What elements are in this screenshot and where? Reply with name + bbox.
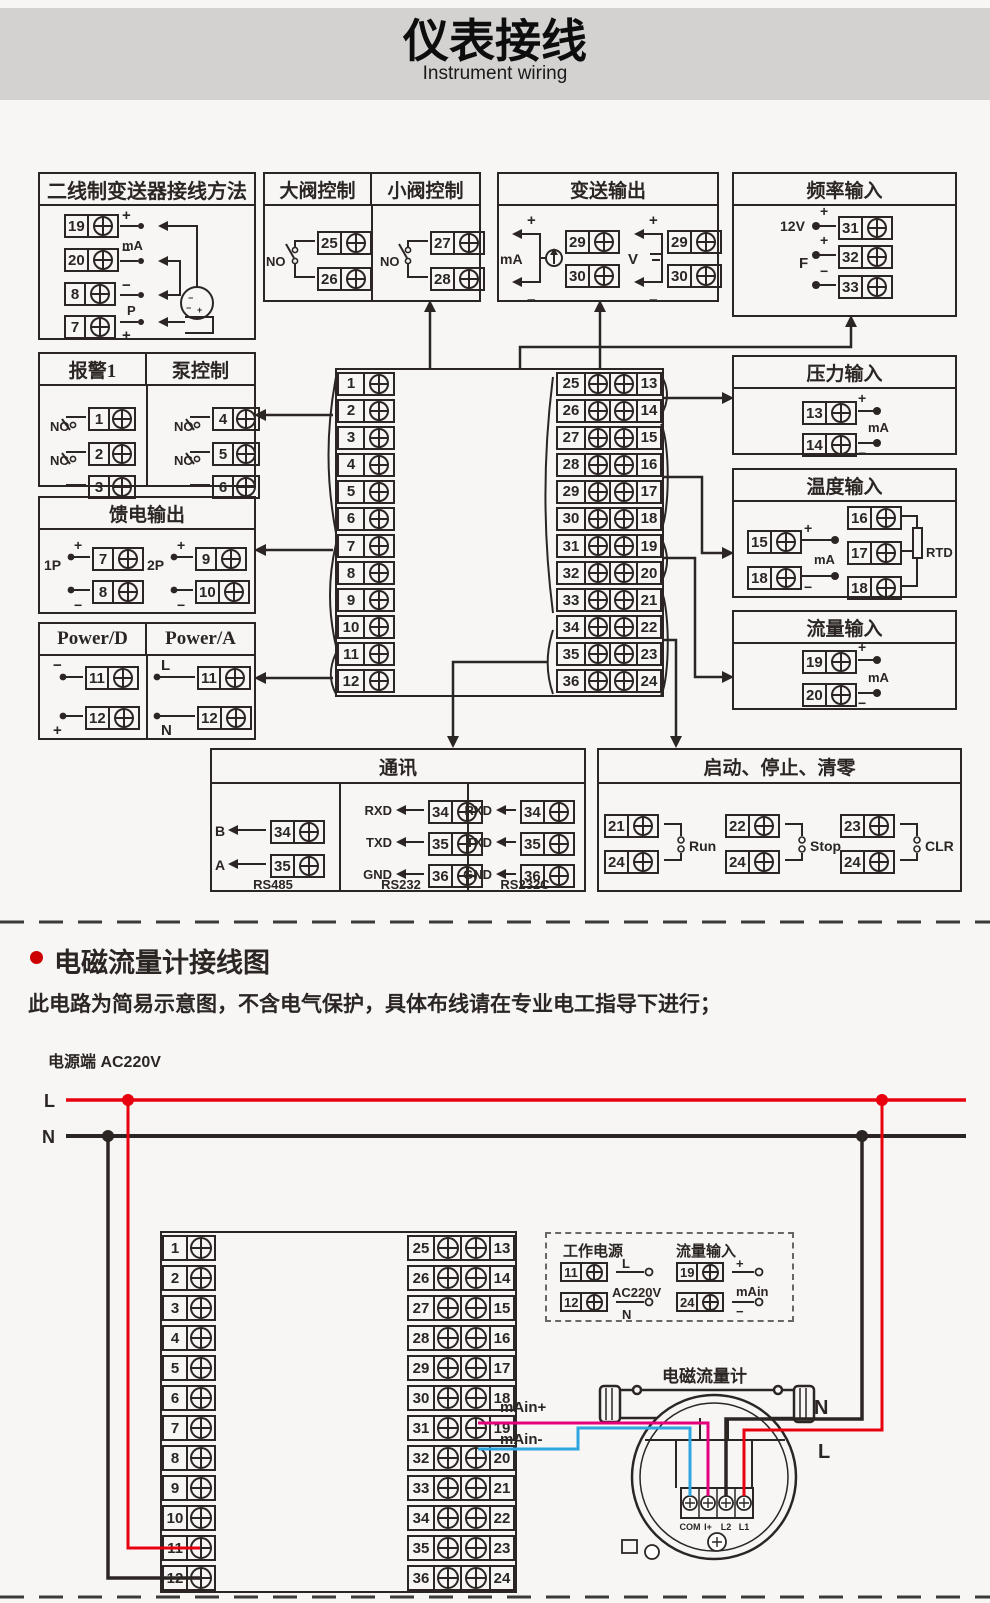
- strip-row: 2 2614: [337, 397, 662, 424]
- svg-text:COM: COM: [680, 1522, 701, 1532]
- svg-text:I+: I+: [704, 1522, 712, 1532]
- terminal-number: 21: [604, 814, 627, 838]
- terminal-screw: [584, 480, 611, 504]
- strip-row: 9 3321: [337, 587, 662, 614]
- terminal-screw: [770, 566, 802, 590]
- terminal-number: 12: [337, 669, 363, 693]
- terminal-number: 14: [491, 1265, 515, 1291]
- terminal: 7: [64, 315, 116, 339]
- terminal-number: 12: [162, 1565, 186, 1591]
- screw-icon: [549, 834, 569, 854]
- terminal-number: 34: [428, 800, 451, 824]
- terminal-number: 19: [64, 214, 87, 238]
- screw-icon: [112, 444, 132, 464]
- flowmeter-drawing: 电磁流量计: [600, 1366, 814, 1559]
- terminal: 23: [840, 814, 895, 838]
- terminal-screw: [611, 588, 638, 612]
- screw-icon: [586, 1264, 603, 1281]
- screw-icon: [831, 403, 851, 423]
- terminal-screw: [186, 1415, 216, 1441]
- terminal-screw: [451, 800, 483, 824]
- terminal-screw: [363, 588, 395, 612]
- run-stop-clear-box: 启动、停止、清零 21 24 22 24 23 24: [597, 748, 962, 892]
- screw-icon: [437, 1237, 459, 1259]
- pump-title: 泵控制: [147, 354, 254, 384]
- terminal: 9: [195, 547, 247, 571]
- terminal-screw: [433, 1445, 462, 1471]
- strip-gap: [216, 1535, 407, 1561]
- strip-gap: [395, 453, 556, 477]
- terminal-number: 1: [337, 372, 363, 396]
- strip-row: 9 3321: [162, 1473, 515, 1503]
- screw-icon: [190, 1447, 212, 1469]
- screw-icon: [465, 1267, 487, 1289]
- screw-icon: [588, 617, 608, 637]
- screw-icon: [112, 409, 132, 429]
- terminal-number: 11: [162, 1535, 186, 1561]
- terminal-number: 24: [604, 850, 627, 874]
- terminal-screw: [627, 814, 659, 838]
- terminal: 19: [802, 650, 857, 674]
- terminal-number: 9: [337, 588, 363, 612]
- terminal-number: 30: [556, 507, 584, 531]
- terminal-number: 25: [317, 231, 340, 255]
- terminal-number: 34: [407, 1505, 433, 1531]
- terminal-number: 11: [85, 666, 107, 690]
- terminal-screw: [433, 1415, 462, 1441]
- terminal-screw: [611, 642, 638, 666]
- terminal-screw: [462, 1325, 491, 1351]
- screw-icon: [614, 644, 634, 664]
- screw-icon: [112, 477, 132, 497]
- terminal-screw: [186, 1535, 216, 1561]
- terminal-screw: [584, 669, 611, 693]
- terminal-screw: [433, 1505, 462, 1531]
- terminal: 5: [212, 442, 260, 466]
- terminal-number: 19: [638, 534, 662, 558]
- terminal: 8: [92, 580, 144, 604]
- terminal: 11: [560, 1262, 608, 1282]
- screw-icon: [867, 218, 887, 238]
- terminal: 25: [317, 231, 372, 255]
- terminal-number: 7: [92, 547, 112, 571]
- terminal-screw: [462, 1565, 491, 1591]
- screw-icon: [614, 374, 634, 394]
- strip-gap: [395, 669, 556, 693]
- terminal-screw: [186, 1325, 216, 1351]
- terminal-screw: [363, 399, 395, 423]
- terminal-screw: [584, 588, 611, 612]
- big-valve-title: 大阀控制: [265, 174, 372, 204]
- screw-icon: [93, 250, 113, 270]
- terminal-screw: [825, 650, 857, 674]
- terminal-number: 2: [88, 442, 108, 466]
- terminal-number: 36: [556, 669, 584, 693]
- screw-icon: [465, 1387, 487, 1409]
- terminal-screw: [363, 507, 395, 531]
- terminal-screw: [611, 669, 638, 693]
- terminal-number: 32: [838, 245, 861, 269]
- terminal-number: 12: [197, 706, 220, 730]
- strip-gap: [395, 588, 556, 612]
- terminal-screw: [861, 216, 893, 240]
- terminal-number: 4: [162, 1325, 186, 1351]
- screw-icon: [369, 455, 389, 475]
- terminal-number: 2: [162, 1265, 186, 1291]
- terminal: 12: [560, 1292, 608, 1312]
- screw-icon: [190, 1477, 212, 1499]
- screw-icon: [437, 1357, 459, 1379]
- terminal-number: 31: [838, 216, 861, 240]
- screw-icon: [190, 1417, 212, 1439]
- screw-icon: [190, 1537, 212, 1559]
- terminal-screw: [584, 561, 611, 585]
- screw-icon: [346, 269, 366, 289]
- terminal-number: 33: [556, 588, 584, 612]
- screw-icon: [465, 1537, 487, 1559]
- terminal-screw: [451, 832, 483, 856]
- terminal: 15: [747, 530, 802, 554]
- screw-icon: [614, 671, 634, 691]
- terminal: 36: [428, 864, 483, 888]
- screw-icon: [614, 590, 634, 610]
- screw-icon: [633, 816, 653, 836]
- terminal-screw: [462, 1265, 491, 1291]
- terminal-screw: [462, 1295, 491, 1321]
- terminal-screw: [363, 426, 395, 450]
- strip-gap: [216, 1325, 407, 1351]
- terminal-number: 27: [556, 426, 584, 450]
- terminal-number: 17: [638, 480, 662, 504]
- screw-icon: [437, 1507, 459, 1529]
- terminal-screw: [584, 399, 611, 423]
- terminal-number: 18: [747, 566, 770, 590]
- terminal-screw: [363, 372, 395, 396]
- terminal: 11: [197, 666, 251, 690]
- terminal-screw: [219, 666, 251, 690]
- screw-icon: [588, 482, 608, 502]
- terminal-screw: [186, 1475, 216, 1501]
- screw-icon: [457, 866, 477, 886]
- screw-icon: [831, 652, 851, 672]
- terminal-screw: [584, 534, 611, 558]
- screw-icon: [594, 266, 614, 286]
- screw-icon: [369, 509, 389, 529]
- strip-row: 5 2917: [162, 1353, 515, 1383]
- terminal-number: 36: [428, 864, 451, 888]
- pressure-input-box: 压力输入 13 14: [732, 355, 957, 455]
- box-title: 频率输入: [734, 174, 955, 206]
- terminal-screw: [433, 1265, 462, 1291]
- terminal-number: 21: [491, 1475, 515, 1501]
- terminal-number: 23: [840, 814, 863, 838]
- two-wire-transmitter-box: 二线制变送器接线方法 19 20 8 7: [38, 172, 256, 340]
- terminal-screw: [363, 480, 395, 504]
- page-title: 仪表接线: [0, 14, 990, 68]
- terminal-screw: [363, 615, 395, 639]
- box-title: 通讯: [212, 750, 584, 784]
- terminal-number: 20: [802, 683, 825, 707]
- flow-input-box: 流量输入 19 20: [732, 610, 957, 710]
- box-title: 馈电输出: [40, 498, 254, 530]
- strip-row: 6 3018: [337, 505, 662, 532]
- terminal-screw: [218, 580, 250, 604]
- strip-gap: [216, 1355, 407, 1381]
- divider: [146, 654, 148, 738]
- terminal-screw: [112, 547, 144, 571]
- strip-gap: [395, 534, 556, 558]
- svg-text:电磁流量计: 电磁流量计: [662, 1366, 747, 1386]
- terminal: 13: [802, 401, 857, 425]
- strip-row: 3 2715: [162, 1293, 515, 1323]
- terminal-number: 25: [556, 372, 584, 396]
- terminal-number: 10: [337, 615, 363, 639]
- screw-icon: [614, 482, 634, 502]
- terminal: 7: [92, 547, 144, 571]
- terminal-number: 35: [520, 832, 543, 856]
- terminal-number: 15: [747, 530, 770, 554]
- terminal-number: 33: [407, 1475, 433, 1501]
- terminal-number: 19: [802, 650, 825, 674]
- terminal-screw: [627, 850, 659, 874]
- box-title: 压力输入: [734, 357, 955, 389]
- screw-icon: [702, 1294, 719, 1311]
- terminal-number: 3: [162, 1295, 186, 1321]
- svg-text:L: L: [818, 1441, 830, 1463]
- power-a-title: Power/A: [147, 624, 254, 654]
- terminal-screw: [861, 245, 893, 269]
- box-title: 二线制变送器接线方法: [40, 174, 254, 206]
- terminal: 33: [838, 275, 893, 299]
- screw-icon: [614, 563, 634, 583]
- terminal-screw: [863, 850, 895, 874]
- screw-icon: [437, 1447, 459, 1469]
- terminal-number: 28: [407, 1325, 433, 1351]
- svg-text:N: N: [814, 1397, 828, 1419]
- screw-icon: [369, 374, 389, 394]
- terminal-number: 34: [270, 820, 293, 844]
- terminal-screw: [108, 407, 136, 431]
- terminal: 18: [847, 576, 902, 600]
- terminal-number: 13: [638, 372, 662, 396]
- terminal-screw: [580, 1292, 608, 1312]
- strip-gap: [395, 615, 556, 639]
- terminal-number: 9: [195, 547, 215, 571]
- terminal: 30: [667, 264, 722, 288]
- terminal-number: 29: [407, 1355, 433, 1381]
- terminal: 24: [840, 850, 895, 874]
- strip-gap: [395, 399, 556, 423]
- terminal-screw: [108, 706, 140, 730]
- terminal-screw: [433, 1535, 462, 1561]
- screw-icon: [236, 477, 256, 497]
- screw-icon: [118, 582, 138, 602]
- strip-row: 6 3018: [162, 1383, 515, 1413]
- terminal-number: 31: [407, 1415, 433, 1441]
- terminal: 16: [847, 506, 902, 530]
- terminal: 17: [847, 541, 902, 565]
- terminal-screw: [611, 453, 638, 477]
- terminal-screw: [363, 453, 395, 477]
- terminal-number: 12: [85, 706, 108, 730]
- screw-icon: [299, 856, 319, 876]
- terminal: 29: [667, 230, 722, 254]
- screw-icon: [369, 590, 389, 610]
- screw-icon: [90, 317, 110, 337]
- terminal-number: 36: [520, 864, 543, 888]
- screw-icon: [118, 549, 138, 569]
- terminal-screw: [543, 864, 575, 888]
- terminal-number: 32: [556, 561, 584, 585]
- terminal-number: 29: [556, 480, 584, 504]
- terminal-screw: [870, 576, 902, 600]
- terminal: 26: [317, 267, 372, 291]
- strip-gap: [395, 480, 556, 504]
- terminal-number: 15: [491, 1295, 515, 1321]
- screw-icon: [90, 284, 110, 304]
- terminal-screw: [584, 642, 611, 666]
- section2-note: 此电路为简易示意图，不含电气保护，具体布线请在专业电工指导下进行；: [28, 988, 721, 1018]
- screw-icon: [113, 668, 133, 688]
- strip-gap: [216, 1385, 407, 1411]
- terminal-number: 20: [491, 1445, 515, 1471]
- screw-icon: [867, 277, 887, 297]
- terminal: 19: [676, 1262, 724, 1282]
- strip-gap: [216, 1445, 407, 1471]
- terminal-screw: [770, 530, 802, 554]
- terminal-screw: [611, 426, 638, 450]
- terminal: 30: [565, 264, 620, 288]
- terminal-number: 29: [565, 230, 588, 254]
- divider: [339, 782, 341, 890]
- terminal: 10: [195, 580, 250, 604]
- strip-gap: [216, 1235, 407, 1261]
- terminal-screw: [433, 1325, 462, 1351]
- screw-icon: [876, 508, 896, 528]
- terminal-number: 16: [491, 1325, 515, 1351]
- terminal-screw: [363, 642, 395, 666]
- screw-icon: [459, 233, 479, 253]
- terminal-number: 22: [491, 1505, 515, 1531]
- screw-icon: [831, 435, 851, 455]
- terminal-screw: [861, 275, 893, 299]
- strip-row: 5 2917: [337, 478, 662, 505]
- terminal: 35: [520, 832, 575, 856]
- strip-row: 11 3523: [162, 1533, 515, 1563]
- screw-icon: [236, 444, 256, 464]
- box-title: 启动、停止、清零: [599, 750, 960, 784]
- terminal-screw: [433, 1385, 462, 1411]
- terminal-screw: [588, 264, 620, 288]
- terminal: 34: [270, 820, 325, 844]
- screw-icon: [346, 233, 366, 253]
- strip-row: 12 3624: [162, 1563, 515, 1593]
- terminal-number: 27: [407, 1295, 433, 1321]
- terminal-screw: [462, 1235, 491, 1261]
- flow-input-title: 流量输入: [676, 1240, 736, 1261]
- terminal-screw: [453, 267, 485, 291]
- strip-gap: [216, 1565, 407, 1591]
- screw-icon: [190, 1357, 212, 1379]
- strip-gap: [395, 372, 556, 396]
- screw-icon: [190, 1267, 212, 1289]
- terminal-number: 34: [520, 800, 543, 824]
- svg-text:L2: L2: [721, 1522, 732, 1532]
- screw-icon: [876, 543, 896, 563]
- terminal-number: 7: [64, 315, 84, 339]
- terminal-number: 30: [667, 264, 690, 288]
- terminal-screw: [433, 1475, 462, 1501]
- terminal-number: 24: [491, 1565, 515, 1591]
- box-title: 大阀控制 小阀控制: [265, 174, 479, 206]
- screw-icon: [369, 536, 389, 556]
- terminal-number: 22: [725, 814, 748, 838]
- strip-gap: [395, 507, 556, 531]
- terminal-number: 5: [212, 442, 232, 466]
- terminal-number: 16: [638, 453, 662, 477]
- terminal-screw: [870, 541, 902, 565]
- terminal: 24: [725, 850, 780, 874]
- screw-icon: [299, 822, 319, 842]
- screw-icon: [776, 568, 796, 588]
- terminal-number: 8: [92, 580, 112, 604]
- terminal-number: 18: [638, 507, 662, 531]
- alarm-pump-box: 报警1 泵控制 1 2 3 4 5 6: [38, 352, 256, 487]
- screw-icon: [437, 1297, 459, 1319]
- screw-icon: [614, 428, 634, 448]
- terminal-number: 20: [64, 248, 87, 272]
- terminal-screw: [112, 580, 144, 604]
- title-banner: 仪表接线 Instrument wiring: [0, 8, 990, 100]
- screw-icon: [754, 852, 774, 872]
- terminal: 19: [64, 214, 119, 238]
- screw-icon: [876, 578, 896, 598]
- terminal-number: 11: [560, 1262, 580, 1282]
- terminal-screw: [584, 372, 611, 396]
- terminal-number: 34: [556, 615, 584, 639]
- small-valve-title: 小阀控制: [372, 174, 479, 204]
- box-title: 流量输入: [734, 612, 955, 644]
- terminal-number: 11: [197, 666, 219, 690]
- terminal-screw: [186, 1385, 216, 1411]
- screw-icon: [614, 455, 634, 475]
- terminal-screw: [588, 230, 620, 254]
- terminal-screw: [232, 442, 260, 466]
- strip-row: 2 2614: [162, 1263, 515, 1293]
- screw-icon: [588, 644, 608, 664]
- screw-icon: [190, 1567, 212, 1589]
- terminal-number: 4: [212, 407, 232, 431]
- screw-icon: [588, 455, 608, 475]
- screw-icon: [614, 509, 634, 529]
- terminal: 24: [676, 1292, 724, 1312]
- section2-heading: 电磁流量计接线图: [54, 941, 270, 980]
- terminal-number: 23: [638, 642, 662, 666]
- terminal-number: 24: [638, 669, 662, 693]
- screw-icon: [588, 536, 608, 556]
- terminal-screw: [433, 1295, 462, 1321]
- temperature-input-box: 温度输入 15 18 16 17 18: [732, 468, 957, 598]
- terminal-number: 35: [428, 832, 451, 856]
- terminal-screw: [462, 1385, 491, 1411]
- terminal-screw: [584, 426, 611, 450]
- screw-icon: [437, 1477, 459, 1499]
- screw-icon: [221, 549, 241, 569]
- screw-icon: [457, 802, 477, 822]
- terminal-screw: [611, 534, 638, 558]
- terminal: 18: [747, 566, 802, 590]
- terminal: 1: [88, 407, 136, 431]
